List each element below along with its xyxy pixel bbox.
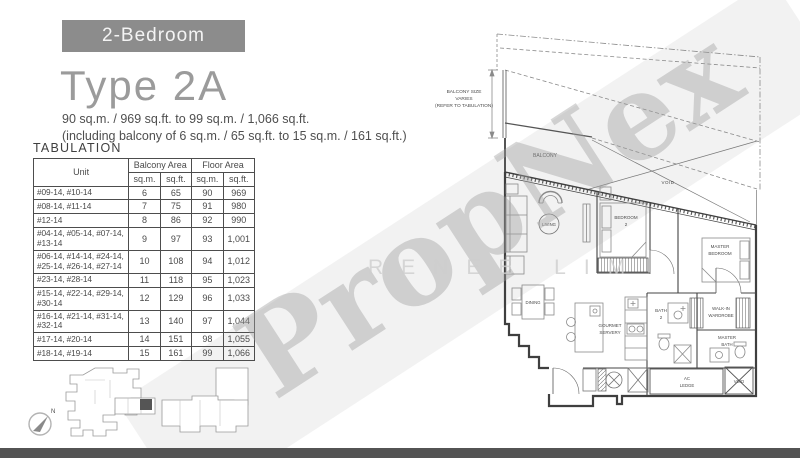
entry-door — [553, 368, 579, 394]
table-cell-balcony_sqm: 6 — [129, 186, 160, 200]
gourmet-label: GOURMET SERVERY — [599, 323, 622, 335]
ac-ledge-label: AC LEDGE — [680, 376, 695, 388]
table-cell-unit: #04-14, #05-14, #07-14, #13-14 — [34, 227, 129, 250]
label-bedroom2-num: 2 — [625, 222, 628, 227]
keyplan-buildings — [66, 368, 248, 436]
category-badge-label: 2-Bedroom — [102, 25, 205, 47]
table-cell-floor_sqm: 98 — [192, 333, 223, 347]
tabulation-heading: TABULATION — [33, 141, 122, 155]
living-furniture — [506, 184, 590, 274]
balcony-note: BALCONY SIZE VARIES (REFER TO TABULATION… — [435, 89, 493, 109]
table-row: #04-14, #05-14, #07-14, #13-14997931,001 — [34, 227, 255, 250]
table-cell-balcony_sqft: 129 — [160, 287, 191, 310]
label-walkin-2: WARDROBE — [708, 313, 733, 318]
table-cell-floor_sqm: 91 — [192, 200, 223, 214]
label-master-bedroom-1: MASTER — [711, 244, 731, 249]
balcony-note-line1: BALCONY SIZE — [447, 89, 482, 95]
keyplan-drawing: N — [18, 360, 268, 445]
table-row: #08-14, #11-1477591980 — [34, 200, 255, 214]
table-cell-unit: #16-14, #21-14, #31-14, #32-14 — [34, 310, 129, 333]
table-cell-balcony_sqm: 15 — [129, 347, 160, 361]
tabulation-table: Unit Balcony Area Floor Area sq.m. sq.ft… — [33, 158, 255, 361]
footer-bar — [0, 448, 800, 458]
label-void-bottom: VOID — [734, 379, 745, 384]
label-bath2: BATH — [655, 308, 667, 313]
table-cell-floor_sqft: 990 — [223, 214, 254, 228]
table-cell-floor_sqm: 99 — [192, 347, 223, 361]
tabulation-body: #09-14, #10-1466590969#08-14, #11-147759… — [34, 186, 255, 360]
column-header-floor-sqft: sq.ft. — [223, 172, 254, 186]
label-gourmet-2: SERVERY — [599, 330, 620, 335]
compass: N — [29, 409, 55, 435]
table-cell-balcony_sqft: 108 — [160, 250, 191, 273]
label-dining: DINING — [525, 300, 541, 305]
table-cell-unit: #06-14, #14-14, #24-14, #25-14, #26-14, … — [34, 250, 129, 273]
label-balcony: BALCONY — [533, 153, 558, 159]
bedroom2-furniture — [598, 187, 648, 272]
column-header-balcony-sqm: sq.m. — [129, 172, 160, 186]
table-cell-unit: #15-14, #22-14, #29-14, #30-14 — [34, 287, 129, 310]
table-cell-floor_sqm: 92 — [192, 214, 223, 228]
table-cell-floor_sqm: 94 — [192, 250, 223, 273]
floorplan-drawing: BALCONY SIZE VARIES (REFER TO TABULATION… — [430, 10, 800, 448]
table-row: #23-14, #28-1411118951,023 — [34, 273, 255, 287]
master-bedroom-label: MASTER BEDROOM — [708, 244, 732, 256]
table-cell-balcony_sqft: 97 — [160, 227, 191, 250]
table-cell-unit: #09-14, #10-14 — [34, 186, 129, 200]
label-bedroom2: BEDROOM — [614, 215, 638, 220]
label-master-bath-2: BATH — [721, 342, 732, 347]
interior-doors — [650, 250, 741, 293]
area-summary-line1: 90 sq.m. / 969 sq.ft. to 99 sq.m. / 1,06… — [62, 112, 309, 126]
table-cell-floor_sqft: 1,066 — [223, 347, 254, 361]
category-badge: 2-Bedroom — [62, 20, 245, 52]
label-void-top: VOID — [661, 180, 674, 185]
table-row: #15-14, #22-14, #29-14, #30-1412129961,0… — [34, 287, 255, 310]
column-header-balcony-area: Balcony Area — [129, 159, 192, 173]
table-cell-balcony_sqft: 161 — [160, 347, 191, 361]
table-cell-floor_sqft: 1,012 — [223, 250, 254, 273]
north-label: N — [51, 409, 55, 415]
table-row: #18-14, #19-1415161991,066 — [34, 347, 255, 361]
master-bath-label: MASTER BATH — [718, 335, 736, 347]
label-walkin-1: WALK-IN — [712, 306, 730, 311]
table-cell-balcony_sqm: 12 — [129, 287, 160, 310]
unit-location-marker — [140, 399, 152, 410]
table-cell-unit: #08-14, #11-14 — [34, 200, 129, 214]
table-cell-balcony_sqm: 13 — [129, 310, 160, 333]
table-cell-unit: #17-14, #20-14 — [34, 333, 129, 347]
page-title: Type 2A — [60, 62, 228, 110]
table-cell-balcony_sqft: 151 — [160, 333, 191, 347]
label-ac-2: LEDGE — [680, 383, 695, 388]
balcony-note-line2: VARIES — [455, 96, 472, 102]
table-cell-balcony_sqm: 11 — [129, 273, 160, 287]
table-cell-balcony_sqft: 65 — [160, 186, 191, 200]
column-header-unit: Unit — [34, 159, 129, 187]
table-cell-balcony_sqm: 14 — [129, 333, 160, 347]
label-ac-1: AC — [684, 376, 690, 381]
label-master-bath-1: MASTER — [718, 335, 736, 340]
north-arrow-icon — [33, 416, 48, 432]
table-cell-floor_sqm: 95 — [192, 273, 223, 287]
table-row: #06-14, #14-14, #24-14, #25-14, #26-14, … — [34, 250, 255, 273]
table-cell-floor_sqm: 97 — [192, 310, 223, 333]
table-cell-floor_sqm: 96 — [192, 287, 223, 310]
table-cell-balcony_sqm: 8 — [129, 214, 160, 228]
table-cell-balcony_sqft: 118 — [160, 273, 191, 287]
table-cell-unit: #18-14, #19-14 — [34, 347, 129, 361]
table-cell-balcony_sqm: 10 — [129, 250, 160, 273]
table-cell-floor_sqft: 1,033 — [223, 287, 254, 310]
table-cell-balcony_sqft: 86 — [160, 214, 191, 228]
column-header-balcony-sqft: sq.ft. — [160, 172, 191, 186]
column-header-floor-area: Floor Area — [192, 159, 255, 173]
kitchen-fixtures — [567, 297, 648, 360]
table-cell-balcony_sqm: 9 — [129, 227, 160, 250]
table-cell-floor_sqft: 1,055 — [223, 333, 254, 347]
living-label: LIVING — [539, 214, 559, 234]
label-bath2-num: 2 — [660, 315, 663, 320]
label-gourmet-1: GOURMET — [599, 323, 622, 328]
table-cell-floor_sqft: 980 — [223, 200, 254, 214]
table-row: #16-14, #21-14, #31-14, #32-1413140971,0… — [34, 310, 255, 333]
table-row: #09-14, #10-1466590969 — [34, 186, 255, 200]
table-cell-unit: #23-14, #28-14 — [34, 273, 129, 287]
service-fixtures — [583, 368, 648, 392]
label-master-bedroom-2: BEDROOM — [708, 251, 732, 256]
table-cell-balcony_sqft: 75 — [160, 200, 191, 214]
table-cell-floor_sqm: 93 — [192, 227, 223, 250]
balcony-note-line3: (REFER TO TABULATION) — [435, 103, 493, 109]
table-cell-balcony_sqft: 140 — [160, 310, 191, 333]
table-cell-unit: #12-14 — [34, 214, 129, 228]
bedroom2-label: BEDROOM 2 — [614, 215, 638, 227]
table-cell-floor_sqft: 1,044 — [223, 310, 254, 333]
column-header-floor-sqm: sq.m. — [192, 172, 223, 186]
walkin-label: WALK-IN WARDROBE — [708, 306, 733, 318]
balcony-varies-lines — [497, 34, 760, 190]
table-cell-balcony_sqm: 7 — [129, 200, 160, 214]
bath2-label: BATH 2 — [655, 308, 667, 320]
label-living: LIVING — [542, 222, 556, 227]
table-cell-floor_sqft: 1,023 — [223, 273, 254, 287]
table-row: #12-1488692990 — [34, 214, 255, 228]
table-row: #17-14, #20-1414151981,055 — [34, 333, 255, 347]
table-cell-floor_sqft: 1,001 — [223, 227, 254, 250]
brochure-page: 2-Bedroom Type 2A 90 sq.m. / 969 sq.ft. … — [0, 0, 800, 458]
table-cell-floor_sqm: 90 — [192, 186, 223, 200]
table-cell-floor_sqft: 969 — [223, 186, 254, 200]
interior-walls — [583, 191, 756, 396]
